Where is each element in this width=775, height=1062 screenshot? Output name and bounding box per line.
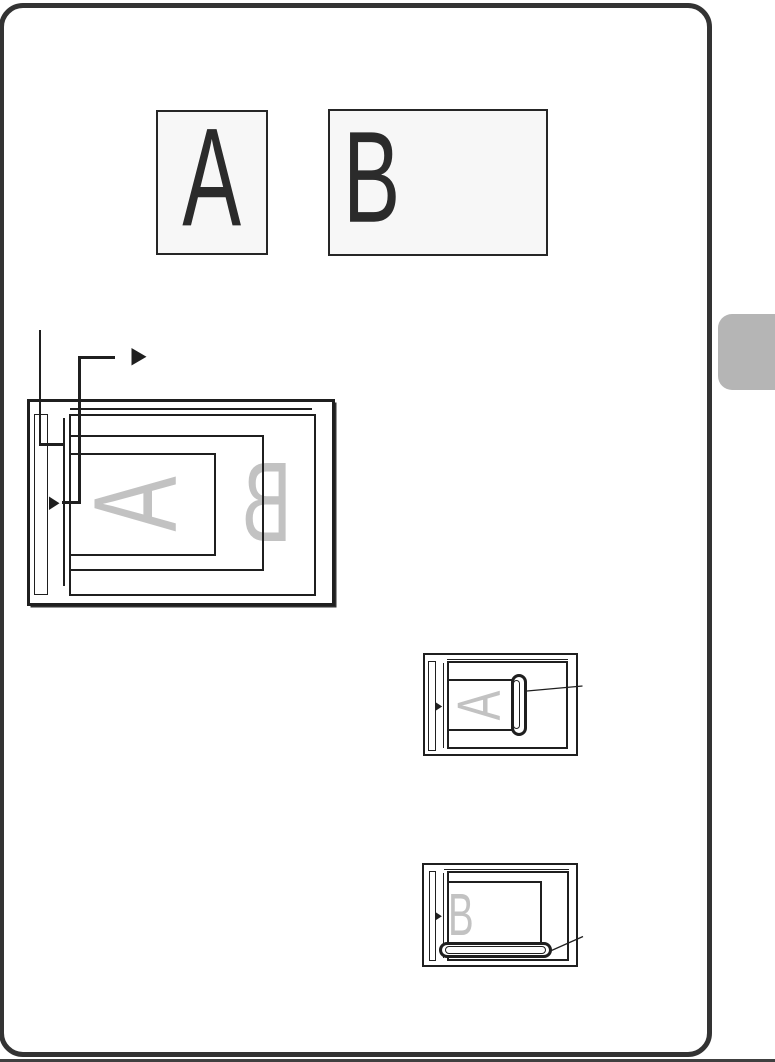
detail-a-top-line <box>447 659 569 660</box>
callout-line-2-vertical <box>78 356 81 503</box>
detail-b-guide-strip <box>429 871 436 961</box>
callout-line-1-horizontal <box>39 443 65 445</box>
document-a-outline <box>69 453 216 556</box>
detail-b-top-line <box>444 869 569 870</box>
callout-line-1-vertical <box>39 330 41 445</box>
sample-doc-b-letter: B <box>343 112 400 242</box>
callout-line-2-top <box>78 356 115 359</box>
section-side-tab <box>718 314 775 390</box>
detail-b-margin-strip <box>445 946 547 955</box>
manual-page: A B A B A B <box>0 0 775 1062</box>
sample-doc-b: B <box>328 109 549 255</box>
sample-doc-a: A <box>156 110 268 255</box>
detail-a-margin-strip <box>513 680 520 729</box>
page-bottom-edge <box>0 1059 775 1062</box>
callout-line-2-bottom <box>62 501 81 504</box>
detail-a-guide-strip <box>428 661 436 751</box>
platen-top-line <box>70 408 312 409</box>
sample-doc-a-letter: A <box>182 107 241 247</box>
